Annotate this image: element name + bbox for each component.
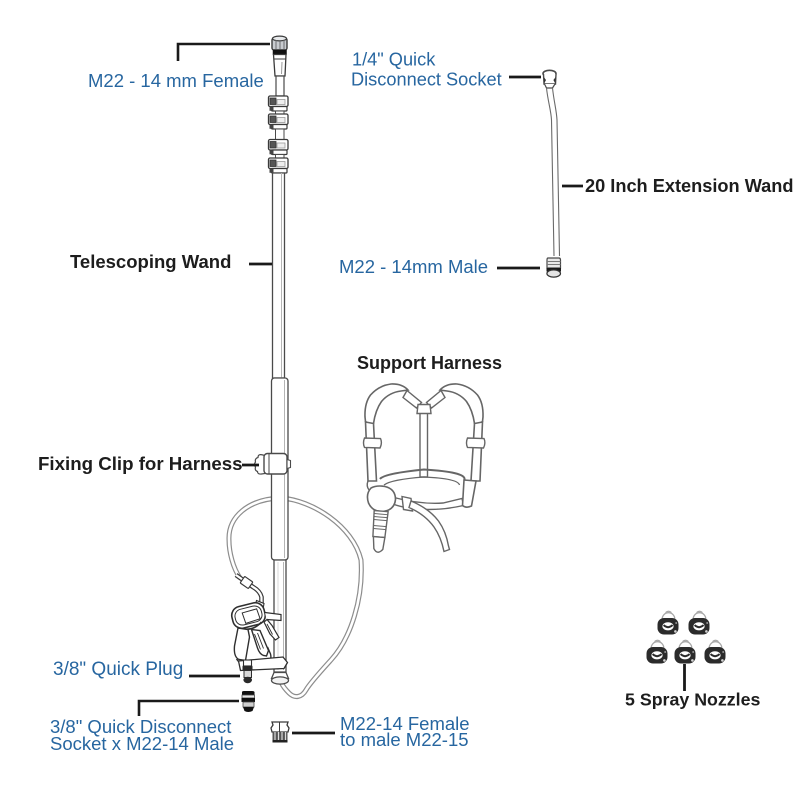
svg-text:Disconnect Socket: Disconnect Socket — [351, 70, 502, 90]
svg-text:M22 - 14mm Male: M22 - 14mm Male — [339, 256, 488, 277]
svg-text:5 Spray Nozzles: 5 Spray Nozzles — [625, 690, 761, 710]
svg-text:Fixing Clip for Harness: Fixing Clip for Harness — [38, 453, 243, 474]
svg-text:to male M22-15: to male M22-15 — [340, 729, 469, 750]
svg-text:Socket x M22-14 Male: Socket x M22-14 Male — [50, 733, 234, 754]
svg-text:Support Harness: Support Harness — [357, 353, 502, 373]
svg-text:1/4" Quick: 1/4" Quick — [352, 50, 436, 70]
svg-text:M22 - 14 mm Female: M22 - 14 mm Female — [88, 70, 264, 91]
svg-text:Telescoping Wand: Telescoping Wand — [70, 251, 231, 272]
svg-text:3/8" Quick Plug: 3/8" Quick Plug — [53, 659, 183, 680]
svg-text:20 Inch Extension Wand: 20 Inch Extension Wand — [585, 176, 794, 196]
